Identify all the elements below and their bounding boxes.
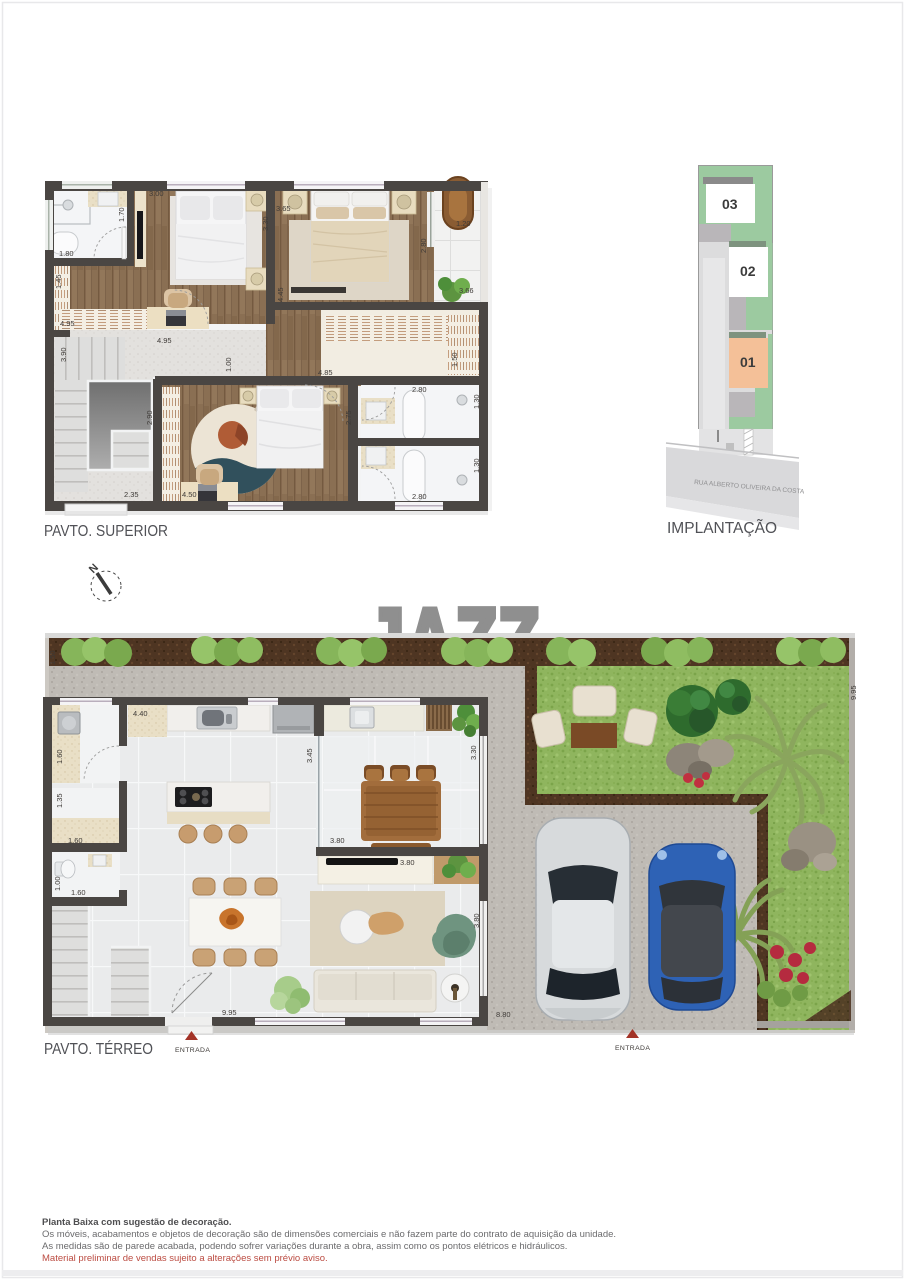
svg-text:3.80: 3.80: [400, 858, 415, 867]
svg-text:3.66: 3.66: [459, 286, 474, 295]
svg-text:1.00: 1.00: [224, 357, 233, 372]
svg-text:1.30: 1.30: [472, 458, 481, 473]
svg-text:ENTRADA: ENTRADA: [615, 1045, 650, 1052]
svg-text:1.50: 1.50: [450, 352, 459, 367]
svg-text:3.80: 3.80: [330, 836, 345, 845]
svg-text:3.30: 3.30: [261, 216, 270, 231]
svg-text:Planta Baixa com sugestão de d: Planta Baixa com sugestão de decoração.: [42, 1217, 232, 1228]
svg-text:4.50: 4.50: [182, 490, 197, 499]
svg-text:3.65: 3.65: [276, 204, 291, 213]
svg-text:2.80: 2.80: [419, 238, 428, 253]
svg-text:1.35: 1.35: [55, 793, 64, 808]
svg-text:4.85: 4.85: [318, 368, 333, 377]
svg-text:8.80: 8.80: [496, 1010, 511, 1019]
svg-text:03: 03: [722, 196, 738, 212]
svg-text:1.45: 1.45: [54, 274, 63, 289]
svg-text:1.00: 1.00: [53, 876, 62, 891]
svg-text:2.80: 2.80: [412, 385, 427, 394]
svg-text:01: 01: [740, 354, 756, 370]
svg-text:2.90: 2.90: [145, 410, 154, 425]
svg-text:1.60: 1.60: [68, 836, 83, 845]
svg-text:As medidas são de parede acaba: As medidas são de parede acabada, podend…: [42, 1241, 567, 1252]
svg-text:1.30: 1.30: [472, 394, 481, 409]
svg-text:1.60: 1.60: [71, 888, 86, 897]
svg-text:3.90: 3.90: [59, 347, 68, 362]
svg-text:1.70: 1.70: [117, 207, 126, 222]
svg-text:ENTRADA: ENTRADA: [175, 1047, 210, 1054]
svg-text:4.95: 4.95: [157, 336, 172, 345]
svg-text:4.45: 4.45: [276, 287, 285, 302]
svg-text:PAVTO. SUPERIOR: PAVTO. SUPERIOR: [44, 523, 168, 540]
svg-text:3.00: 3.00: [149, 189, 164, 198]
svg-text:9.95: 9.95: [222, 1008, 237, 1017]
svg-text:3.80: 3.80: [472, 913, 481, 928]
svg-text:Material preliminar de vendas: Material preliminar de vendas sujeito a …: [42, 1253, 328, 1264]
svg-text:2.35: 2.35: [124, 490, 139, 499]
svg-text:2.80: 2.80: [412, 492, 427, 501]
svg-text:1.20: 1.20: [456, 219, 471, 228]
svg-text:IMPLANTAÇÃO: IMPLANTAÇÃO: [667, 517, 777, 537]
svg-text:3.45: 3.45: [305, 748, 314, 763]
svg-text:1.60: 1.60: [55, 749, 64, 764]
svg-text:1.80: 1.80: [59, 249, 74, 258]
svg-text:3.30: 3.30: [469, 745, 478, 760]
svg-text:4.40: 4.40: [133, 709, 148, 718]
svg-text:02: 02: [740, 263, 756, 279]
svg-text:PAVTO. TÉRREO: PAVTO. TÉRREO: [44, 1039, 153, 1058]
svg-text:4.95: 4.95: [60, 319, 75, 328]
svg-text:9.95: 9.95: [849, 685, 858, 700]
svg-text:1.50: 1.50: [48, 650, 57, 665]
svg-text:2.75: 2.75: [344, 410, 353, 425]
svg-text:Os móveis, acabamentos e objet: Os móveis, acabamentos e objetos de deco…: [42, 1229, 616, 1240]
